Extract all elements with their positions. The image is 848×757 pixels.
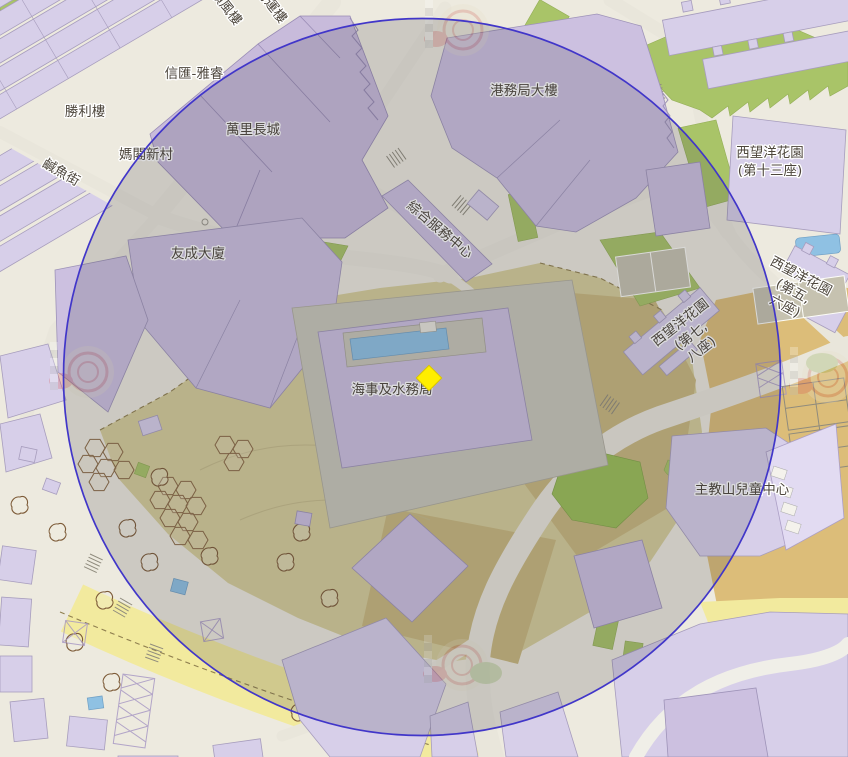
- watermark-emblem: [789, 347, 848, 403]
- map-canvas: 順風樓 勝運樓 信匯-雅睿 勝利樓 萬里長城 媽閣新村 港務局大樓 友成大廈 海…: [0, 0, 848, 757]
- svg-text:西望洋花園: 西望洋花園: [736, 145, 804, 161]
- label-sing-lei: 勝利樓: [65, 104, 106, 120]
- svg-text:(第十三座): (第十三座): [738, 162, 803, 179]
- map-viewport[interactable]: 順風樓 勝運樓 信匯-雅睿 勝利樓 萬里長城 媽閣新村 港務局大樓 友成大廈 海…: [0, 0, 848, 757]
- label-shun-wui: 信匯-雅睿: [165, 66, 224, 82]
